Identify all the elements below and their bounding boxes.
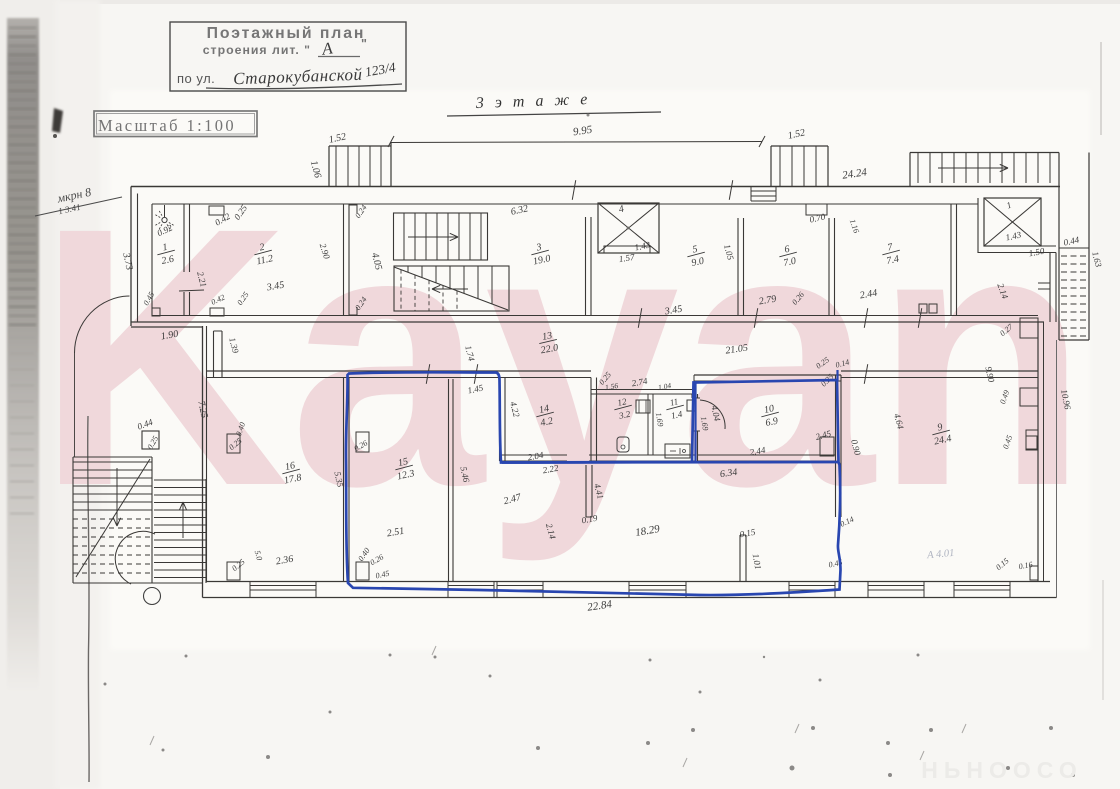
svg-text:Масштаб 1:100: Масштаб 1:100 (98, 116, 236, 135)
svg-text:НЬНООСО: НЬНООСО (921, 757, 1082, 783)
svg-text:по ул.: по ул. (177, 71, 215, 86)
svg-text:": " (361, 37, 367, 51)
svg-text:строения лит. ": строения лит. " (203, 43, 311, 57)
svg-text:Поэтажный план: Поэтажный план (207, 25, 366, 42)
